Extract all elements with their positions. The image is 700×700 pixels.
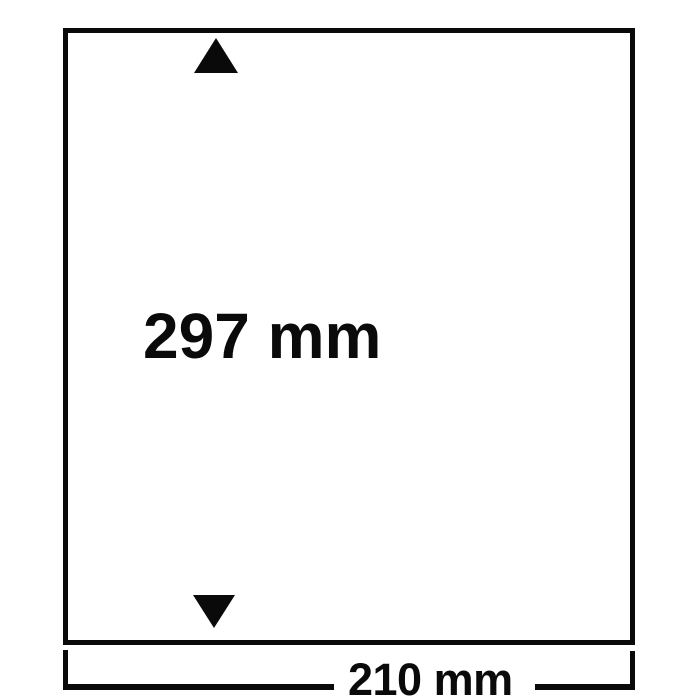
dimension-line-right [535, 684, 635, 690]
height-label: 297 mm [143, 304, 381, 368]
triangle-down-icon [193, 595, 235, 628]
triangle-up-icon [194, 38, 238, 73]
width-label: 210 mm [348, 657, 513, 700]
dimension-line-left [63, 684, 334, 690]
sheet-size-diagram: 297 mm 210 mm [0, 0, 700, 700]
